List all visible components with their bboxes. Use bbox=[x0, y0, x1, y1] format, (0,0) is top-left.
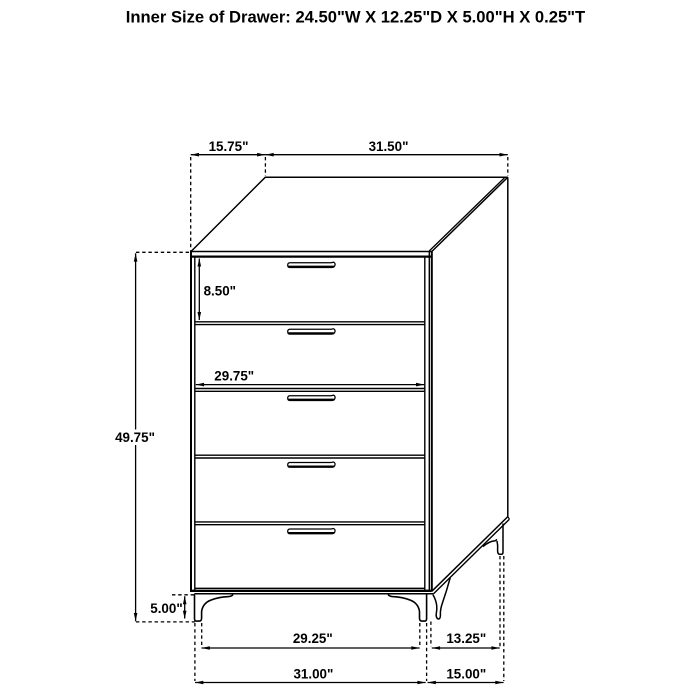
svg-text:29.75": 29.75" bbox=[214, 368, 254, 383]
svg-text:49.75": 49.75" bbox=[115, 430, 155, 445]
svg-text:31.50": 31.50" bbox=[369, 139, 409, 154]
svg-text:31.00": 31.00" bbox=[293, 667, 333, 682]
svg-text:Inner Size of Drawer: 24.50"W: Inner Size of Drawer: 24.50"W X 12.25"D … bbox=[126, 8, 585, 27]
svg-text:5.00": 5.00" bbox=[150, 601, 182, 616]
svg-text:13.25": 13.25" bbox=[446, 631, 486, 646]
svg-text:29.25": 29.25" bbox=[293, 631, 333, 646]
svg-text:15.00": 15.00" bbox=[446, 667, 486, 682]
svg-text:15.75": 15.75" bbox=[209, 139, 249, 154]
svg-text:8.50": 8.50" bbox=[204, 284, 236, 299]
